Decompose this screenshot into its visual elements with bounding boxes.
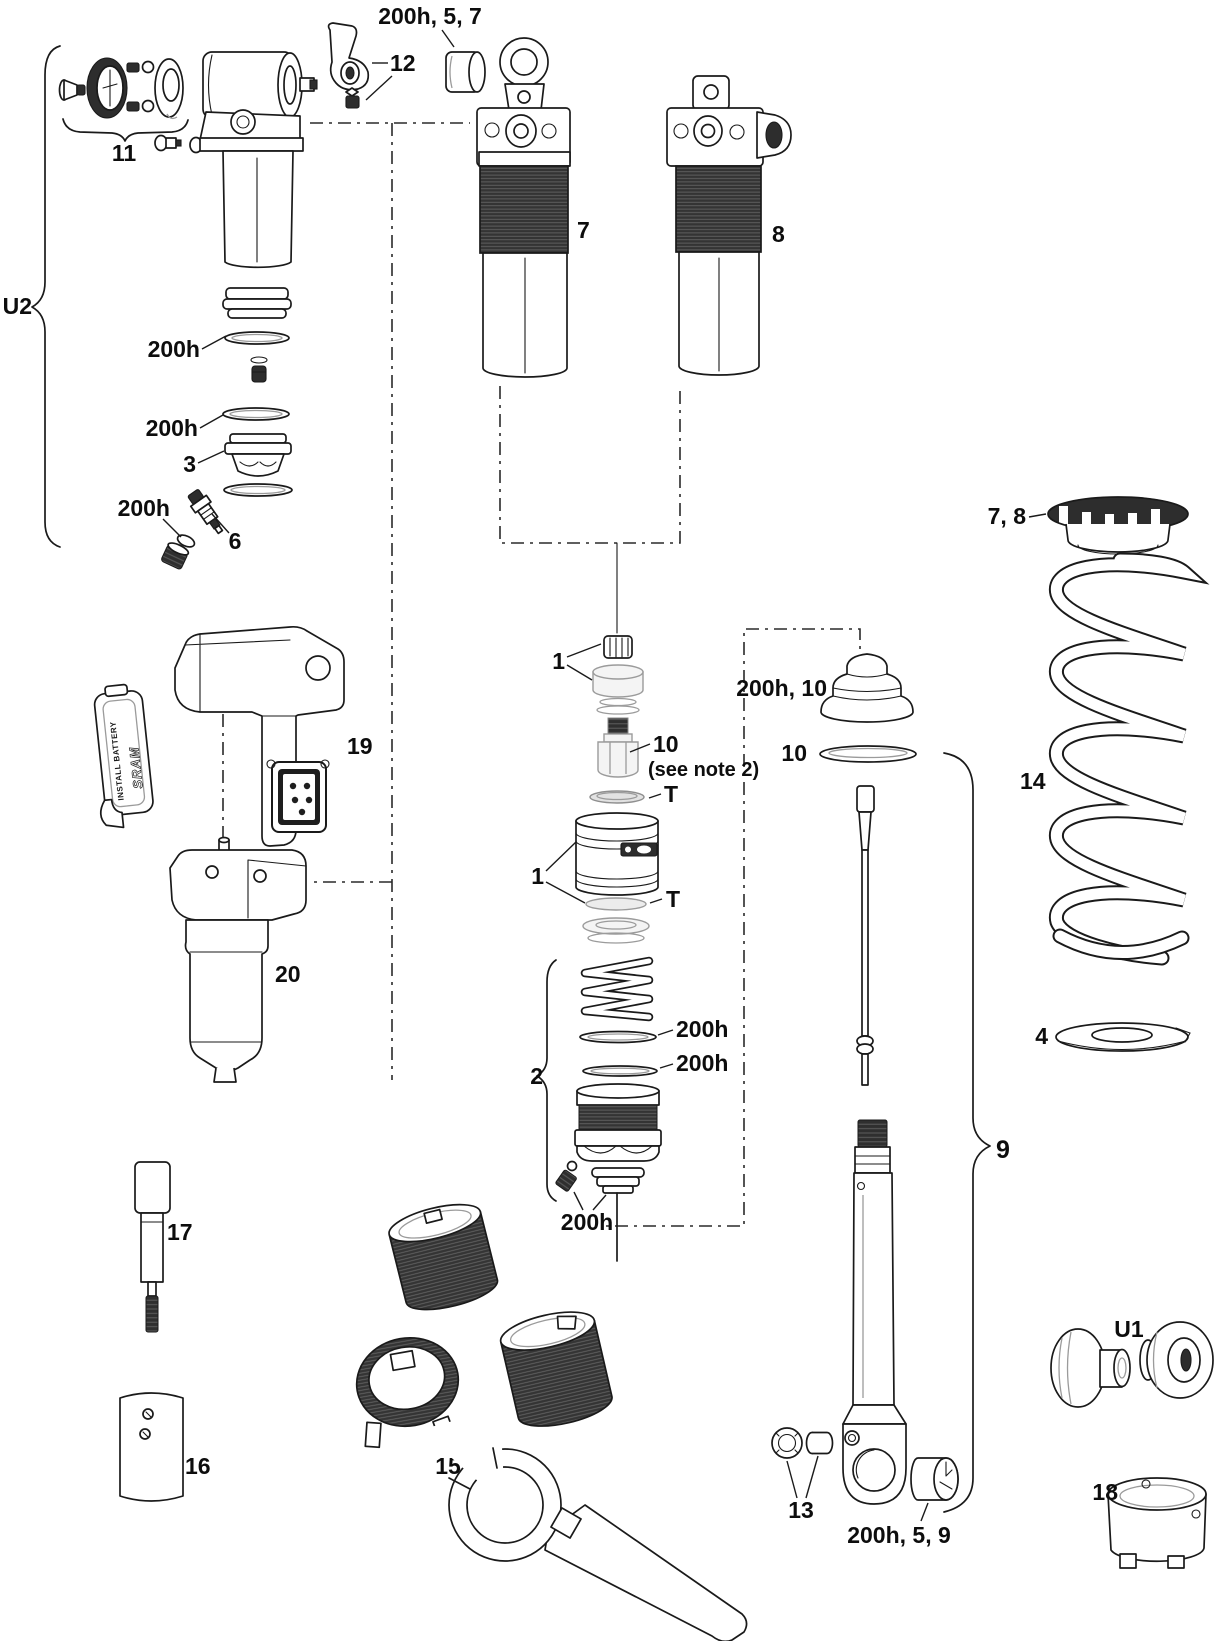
callout-t1: T: [664, 781, 678, 807]
preload-collar-7-8: 7, 8: [988, 497, 1188, 554]
exploded-diagram: U2 11: [0, 0, 1214, 1641]
bottom-out-bumper: 200h, 10: [736, 654, 913, 722]
left-stack-callouts: 200h 200h 3 200h 6: [118, 336, 242, 554]
callout-7: 7: [577, 217, 590, 243]
wiper-seal-10: 10: [781, 740, 916, 766]
callout-10-note: (see note 2): [648, 759, 759, 781]
spring-retainer-4: 4: [1035, 1023, 1190, 1051]
adjustment-wrench: [420, 1408, 747, 1641]
shaft-clamp-tool-17: 17: [135, 1162, 193, 1332]
callout-18: 18: [1092, 1479, 1118, 1505]
motor-shock-assembly: [161, 52, 317, 570]
callout-14: 14: [1020, 768, 1046, 794]
top-cap-1: 1: [552, 636, 643, 714]
callout-11: 11: [112, 140, 137, 166]
callout-10-right: 10: [781, 740, 807, 766]
callout-200h-oring-b: 200h: [676, 1050, 728, 1076]
callout-9: 9: [996, 1136, 1010, 1164]
callout-u1: U1: [1114, 1316, 1144, 1342]
callout-19: 19: [347, 733, 373, 759]
callout-3: 3: [183, 451, 196, 477]
callout-200h-oring-a: 200h: [676, 1016, 728, 1042]
callout-200h-bottom: 200h: [561, 1209, 613, 1235]
callout-17: 17: [167, 1219, 193, 1245]
callout-200h-b: 200h: [146, 415, 198, 441]
rebound-needle: [857, 786, 874, 1085]
air-can-piston-1: 1: [531, 813, 658, 903]
glide-ring-t1: T: [590, 781, 678, 807]
reservoir-20: 20: [170, 838, 306, 1083]
callout-8: 8: [772, 221, 785, 247]
remote-lever-12: 12: [329, 23, 416, 108]
callout-16: 16: [185, 1453, 211, 1479]
threaded-collar-a: [386, 1197, 501, 1317]
callout-6: 6: [229, 528, 242, 554]
motor-module-19: 19: [175, 627, 373, 846]
piston-3: [225, 434, 291, 476]
callout-t2: T: [666, 886, 680, 912]
exploded-diagram-page: U2 11: [0, 0, 1214, 1641]
callout-2: 2: [530, 1063, 543, 1089]
mount-bolt: [155, 136, 181, 151]
callout-1b: 1: [531, 863, 544, 889]
storage-tube-16: 16: [120, 1393, 211, 1501]
damper-shaft-9: [843, 1120, 906, 1504]
valve-adapter-10: 10 (see note 2): [598, 718, 759, 781]
callout-u2: U2: [3, 293, 32, 319]
air-shock-8: 8: [667, 76, 791, 375]
callout-1a: 1: [552, 648, 565, 674]
coil-spring-14: 14: [1020, 560, 1184, 958]
callout-200h-a: 200h: [148, 336, 200, 362]
callout-10-mid: 10: [653, 731, 679, 757]
hardware-kit-11: 11: [60, 58, 217, 166]
battery-blank-cover: INSTALL BATTERY SRAM: [88, 683, 156, 830]
threaded-collar-c: [497, 1305, 615, 1434]
callout-200h-c: 200h: [118, 495, 170, 521]
callout-20: 20: [275, 961, 301, 987]
callout-7-8: 7, 8: [988, 503, 1027, 529]
damper-kit-2: 2 200h 200h 200h: [530, 960, 728, 1261]
eyelet-bushing-top: 200h, 5, 7: [378, 3, 485, 92]
u1-valve-caps: U1: [1051, 1316, 1213, 1407]
callout-200h-5-7: 200h, 5, 7: [378, 3, 482, 29]
air-shock-7: 7: [477, 38, 590, 377]
bottoming-cup-18: 18: [1092, 1478, 1206, 1568]
callout-12: 12: [390, 50, 416, 76]
callout-200h-5-9: 200h, 5, 9: [847, 1522, 951, 1548]
callout-200h-10: 200h, 10: [736, 675, 827, 701]
u2-group-brace: U2: [3, 46, 60, 547]
callout-4: 4: [1035, 1023, 1048, 1049]
shaft-brace-9: 9: [944, 753, 1010, 1512]
valve-core-6: [185, 487, 228, 537]
callout-13: 13: [788, 1497, 814, 1523]
eyelet-hardware-13: 13: [772, 1428, 833, 1523]
